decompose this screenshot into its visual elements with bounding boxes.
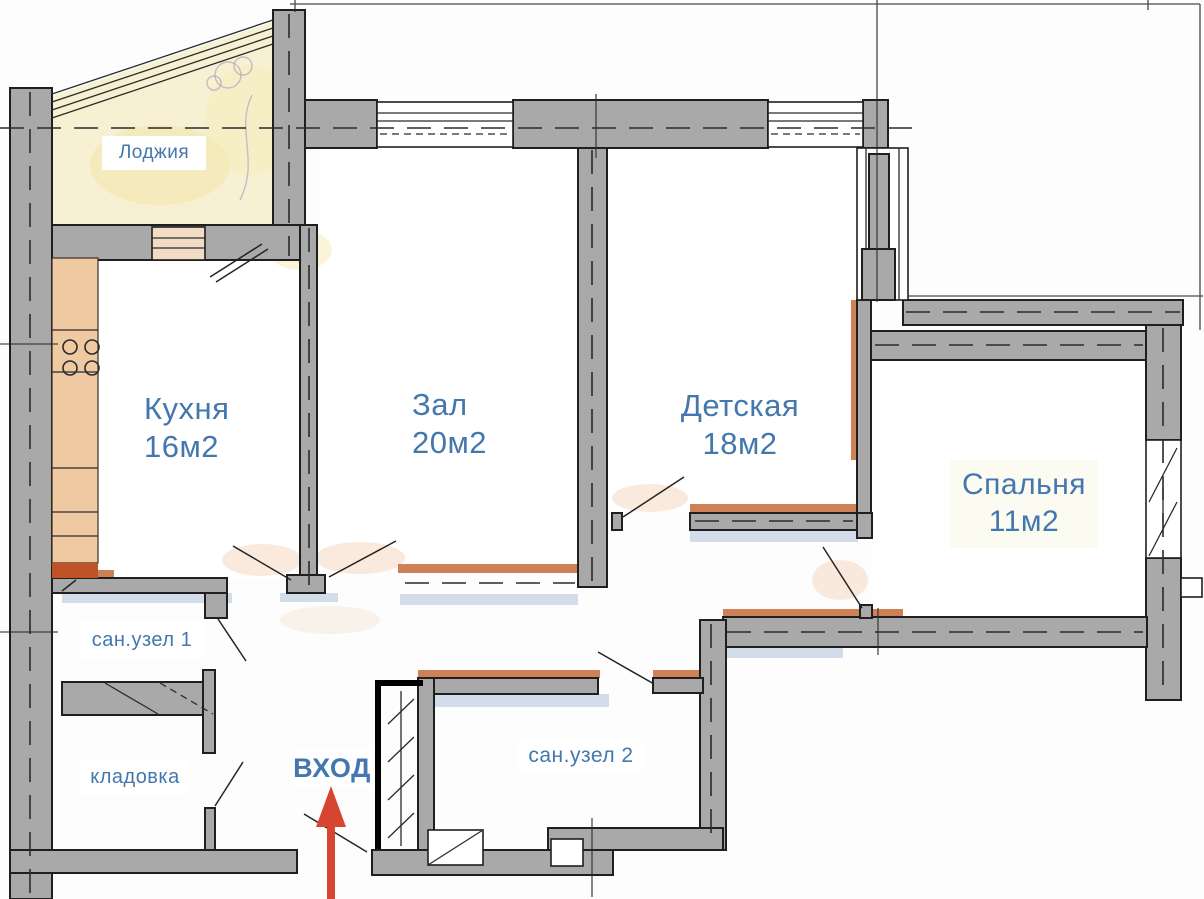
loggia-kitchen-window [152,227,205,260]
children-name: Детская [681,387,799,425]
wc2-door-swing [598,652,654,684]
kitchen-counter [52,258,99,578]
living-area: 20м2 [412,424,487,462]
left-outer-wall [10,88,52,899]
living-floor [320,148,578,572]
entry-closet [375,680,423,849]
kitchen-area: 16м2 [144,428,219,466]
living-name: Зал [412,386,468,424]
children-corner-window-bay [857,148,908,300]
entrance-label: ВХОД [290,750,374,786]
floor-plan: Лоджия Кухня 16м2 Зал 20м2 Детская 18м2 … [0,0,1204,899]
living-window [377,102,513,147]
wc1-door-swing [218,619,246,661]
wc1-top-wall [52,578,227,593]
wc2-top-wall [418,678,598,694]
entrance-text: ВХОД [293,752,371,785]
entrance-arrow [316,786,346,899]
room-label-living: Зал 20м2 [398,378,522,470]
children-right-wall-end [857,513,872,538]
room-label-bedroom: Спальня 11м2 [950,460,1098,548]
children-bottom-stub [612,513,622,530]
wc2-small-shaft [551,839,583,866]
bottom-wall-left [10,850,297,873]
room-label-children: Детская 18м2 [666,380,814,470]
wc2-top-stub [653,678,703,693]
room-label-loggia: Лоджия [102,136,206,170]
hallway-wall [700,620,726,850]
top-wall-left [305,100,377,148]
bedroom-area: 11м2 [989,504,1059,541]
wc1-door-stub [205,593,227,618]
room-label-bathroom1: сан.узел 1 [80,622,204,658]
top-wall-pier [863,100,888,148]
storage-name: кладовка [90,765,180,789]
bedroom-name: Спальня [962,467,1086,504]
bathroom1-name: сан.узел 1 [92,628,192,652]
room-label-storage: кладовка [80,760,190,794]
children-right-wall [857,300,871,513]
room-label-kitchen: Кухня 16м2 [128,382,262,474]
storage-door-swing [215,762,243,806]
bathroom2-name: сан.узел 2 [528,743,633,769]
loggia-name: Лоджия [119,141,189,164]
top-wall-middle [513,100,768,148]
children-area: 18м2 [702,425,777,463]
ventilation-wall [62,682,213,715]
storage-door-stub [205,808,215,850]
room-label-bathroom2: сан.узел 2 [518,740,644,772]
kitchen-counter-end [52,563,98,578]
wc2-vent-box [428,830,483,865]
children-window [768,102,863,147]
kitchen-wall-foot [287,575,325,593]
bedroom-window-sill [1181,578,1202,597]
kitchen-name: Кухня [144,390,229,428]
hall-mid-stub [203,670,215,753]
